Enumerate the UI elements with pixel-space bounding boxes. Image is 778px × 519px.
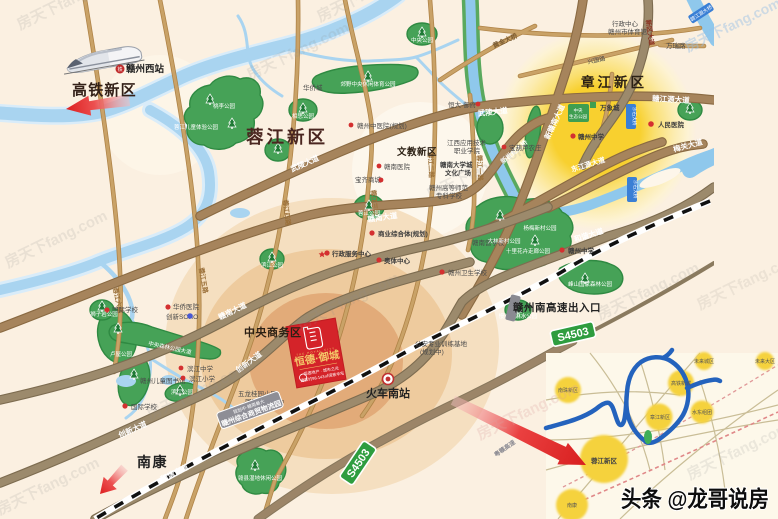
svg-text:高铁新城: 高铁新城: [671, 380, 691, 387]
svg-text:恒大·御府: 恒大·御府: [448, 100, 477, 109]
svg-text:生态公园: 生态公园: [569, 113, 587, 120]
svg-text:赣州西站: 赣州西站: [126, 63, 165, 75]
svg-text:蓉江儿童体验公园: 蓉江儿童体验公园: [174, 123, 219, 131]
svg-text:桃李公园: 桃李公园: [213, 102, 236, 110]
svg-text:赣州市体育馆: 赣州市体育馆: [608, 27, 648, 36]
svg-text:大林新村公园: 大林新村公园: [487, 237, 521, 245]
svg-text:创新SOHO: 创新SOHO: [166, 312, 198, 321]
svg-text:宝齐商城: 宝齐商城: [355, 175, 382, 184]
svg-text:杨梅新村公园: 杨梅新村公园: [523, 224, 557, 232]
svg-text:赣州中医院(规划): 赣州中医院(规划): [357, 121, 407, 130]
svg-text:南康: 南康: [137, 454, 168, 470]
svg-text:中央商务区: 中央商务区: [244, 325, 302, 339]
svg-text:赣州卫生学校: 赣州卫生学校: [448, 268, 488, 277]
svg-text:铁: 铁: [117, 66, 122, 73]
svg-text:赣州儿童图书馆: 赣州儿童图书馆: [140, 376, 186, 385]
svg-text:奥体中心: 奥体中心: [383, 256, 411, 265]
svg-text:文教新区: 文教新区: [396, 146, 437, 158]
svg-text:滨江中学: 滨江中学: [187, 364, 214, 373]
svg-text:水东组团: 水东组团: [692, 409, 712, 416]
svg-text:中央: 中央: [574, 107, 583, 114]
svg-text:高铁新区: 高铁新区: [72, 81, 137, 99]
svg-text:(规划中): (规划中): [420, 347, 444, 356]
svg-text:赣州中学: 赣州中学: [578, 132, 605, 141]
svg-text:未来大区: 未来大区: [755, 358, 775, 365]
svg-text:万象城: 万象城: [599, 103, 620, 112]
svg-text:行政中心: 行政中心: [612, 19, 639, 28]
svg-text:行政服务中心: 行政服务中心: [331, 249, 372, 258]
svg-text:火车南站: 火车南站: [366, 386, 410, 400]
svg-text:南康: 南康: [567, 502, 577, 509]
svg-text:赣州南高速出入口: 赣州南高速出入口: [513, 301, 601, 314]
svg-text:职业学院: 职业学院: [454, 146, 481, 155]
svg-text:中央公园: 中央公园: [411, 36, 434, 44]
svg-text:相思公园: 相思公园: [292, 112, 315, 120]
svg-text:沙石大桥: 沙石大桥: [632, 180, 639, 199]
svg-text:赣南医院: 赣南医院: [384, 162, 411, 171]
svg-text:章江新区: 章江新区: [650, 414, 670, 421]
svg-text:蓉江新区: 蓉江新区: [246, 127, 328, 147]
svg-text:十里花卉走廊公园: 十里花卉走廊公园: [506, 247, 551, 255]
svg-text:滨江公园: 滨江公园: [261, 261, 284, 269]
svg-text:狮子岩公园: 狮子岩公园: [90, 310, 118, 318]
svg-text:郊野中央休闲体育公园: 郊野中央休闲体育公园: [340, 80, 396, 88]
svg-text:峰山国家森林公园: 峰山国家森林公园: [568, 280, 613, 288]
svg-text:章江新区: 章江新区: [581, 74, 647, 90]
svg-text:头条 @龙哥说房: 头条 @龙哥说房: [621, 486, 769, 512]
svg-text:赣县湿地休闲公园: 赣县湿地休闲公园: [238, 474, 283, 482]
svg-text:卢屋公园: 卢屋公园: [110, 350, 133, 358]
svg-text:华侨城: 华侨城: [303, 83, 323, 92]
svg-text:江西应用技术: 江西应用技术: [447, 138, 487, 147]
svg-text:蓉江公园: 蓉江公园: [358, 209, 381, 217]
svg-text:华侨医院: 华侨医院: [173, 302, 200, 311]
svg-text:公安专业训练基地: 公安专业训练基地: [415, 339, 468, 348]
svg-text:赣江源大道: 赣江源大道: [652, 93, 690, 105]
svg-text:赣州中学: 赣州中学: [568, 246, 595, 255]
svg-text:人民医院: 人民医院: [658, 120, 685, 129]
svg-text:商业综合体(规划): 商业综合体(规划): [378, 229, 428, 238]
svg-text:未来城区: 未来城区: [694, 358, 714, 365]
svg-text:沙石大桥: 沙石大桥: [631, 107, 638, 126]
svg-text:蓉江新区: 蓉江新区: [591, 456, 618, 465]
